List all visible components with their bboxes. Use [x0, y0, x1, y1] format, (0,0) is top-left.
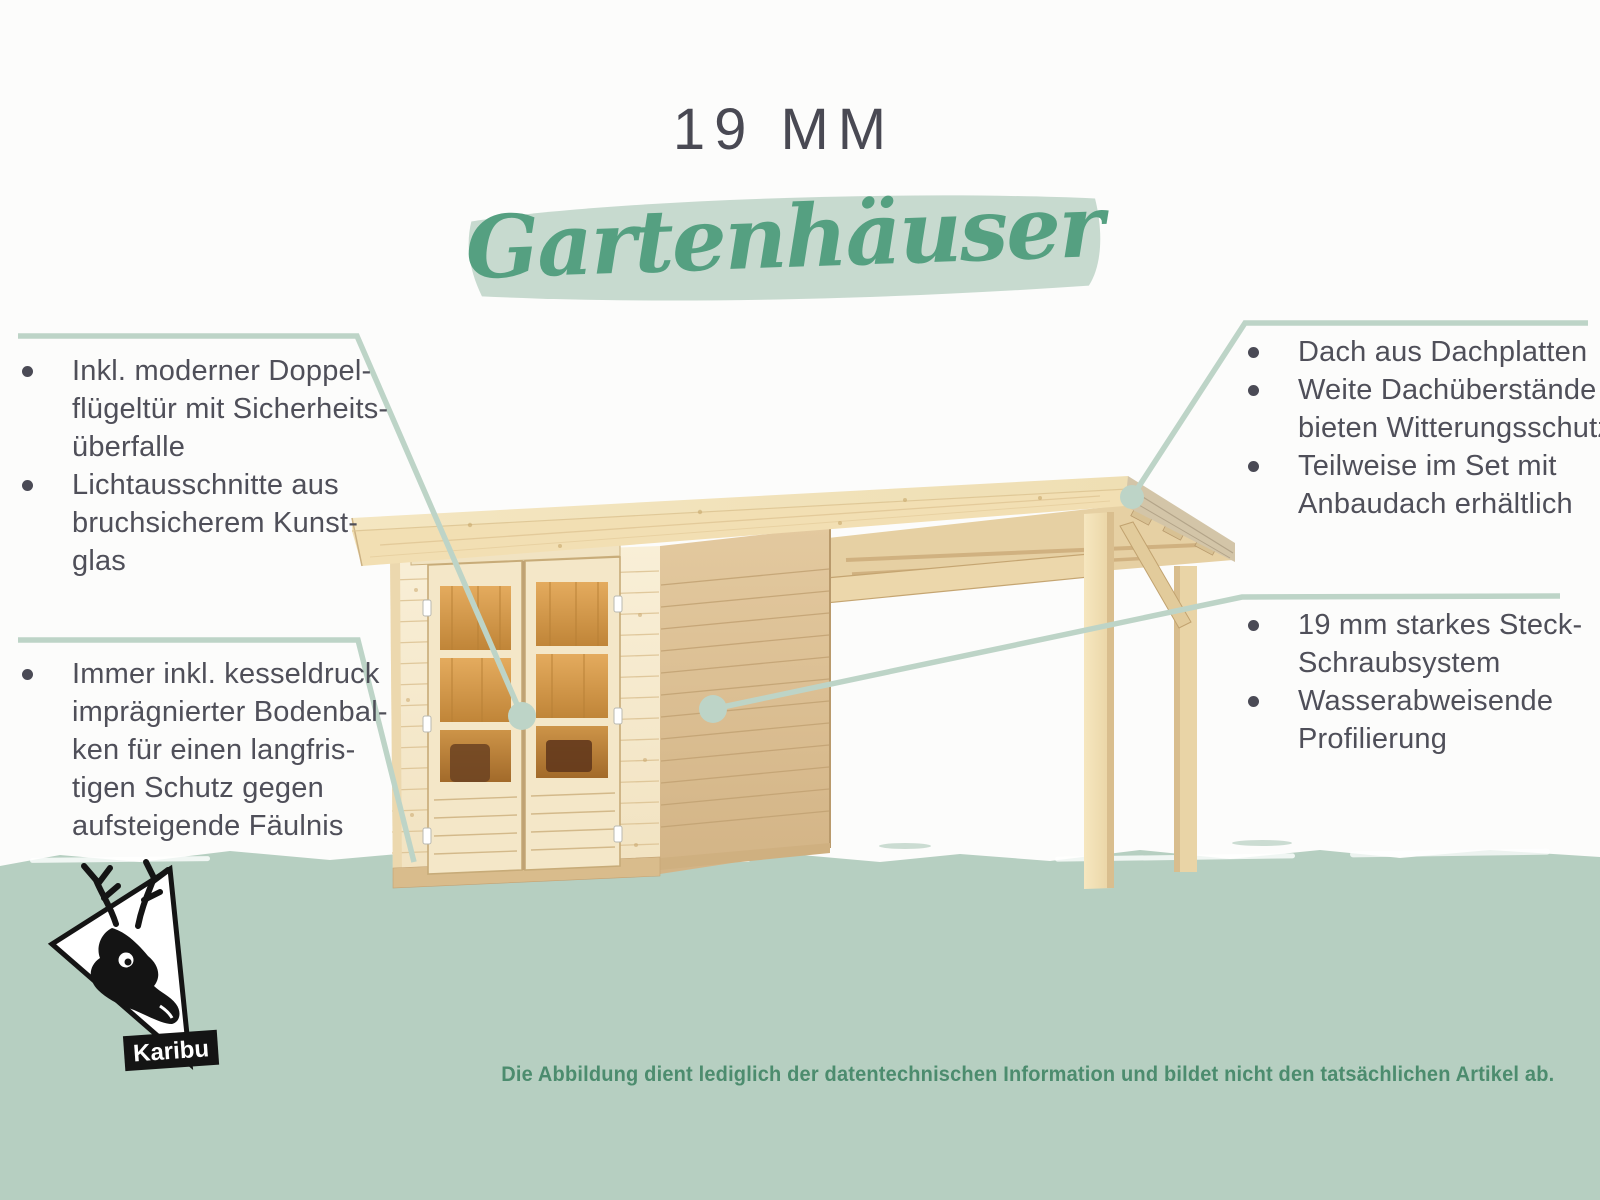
callout-right-top: Dach aus Dachplatten Weite Dachüberständ… — [1248, 333, 1600, 523]
door-window-pane — [536, 582, 608, 646]
callout-line: Teilweise im Set mit — [1298, 447, 1573, 485]
bullet-icon — [1248, 620, 1259, 631]
callout-left-bottom: Immer inkl. kesseldruck imprägnierter Bo… — [22, 655, 388, 845]
infographic-page: Karibu 19 MM Gartenhäuser Inkl. moderner… — [0, 0, 1600, 1200]
callout-line: glas — [72, 542, 358, 580]
callout-item: Dach aus Dachplatten — [1248, 333, 1600, 371]
callout-item: 19 mm starkes Steck- Schraubsystem — [1248, 606, 1582, 682]
callout-line: Lichtausschnitte aus — [72, 466, 358, 504]
callout-line: Inkl. moderner Doppel- — [72, 352, 388, 390]
callout-line: Weite Dachüberstände — [1298, 371, 1600, 409]
bullet-icon — [22, 366, 33, 377]
callout-dot-wall — [699, 695, 727, 723]
bullet-icon — [22, 669, 33, 680]
callout-line: imprägnierter Bodenbal- — [72, 693, 388, 731]
callout-line: 19 mm starkes Steck- — [1298, 606, 1582, 644]
disclaimer-text: Die Abbildung dient lediglich der datent… — [501, 1062, 1554, 1088]
callout-line: Immer inkl. kesseldruck — [72, 655, 388, 693]
interior-table-silhouette — [546, 740, 592, 772]
callout-left-top: Inkl. moderner Doppel- flügeltür mit Sic… — [22, 352, 388, 580]
door-leaf-right — [525, 557, 620, 870]
callout-item: Weite Dachüberstände bieten Witterungssc… — [1248, 371, 1600, 447]
page-title: 19 MM — [534, 100, 1034, 160]
interior-chair-silhouette — [450, 744, 490, 782]
callout-line: ken für einen langfris- — [72, 731, 388, 769]
karibu-wordmark: Karibu — [123, 1030, 219, 1071]
callout-line: Profilierung — [1298, 720, 1553, 758]
callout-item: Teilweise im Set mit Anbaudach erhältlic… — [1248, 447, 1600, 523]
bullet-icon — [1248, 385, 1259, 396]
canopy-front-post — [1084, 512, 1114, 889]
garden-house-render — [352, 476, 1235, 889]
callout-item: Lichtausschnitte aus bruchsicherem Kunst… — [22, 466, 388, 580]
callout-item: Inkl. moderner Doppel- flügeltür mit Sic… — [22, 352, 388, 466]
callout-dot-roof — [1120, 485, 1144, 509]
callout-item: Wasserabweisende Profilierung — [1248, 682, 1582, 758]
callout-dot-door — [508, 702, 536, 730]
callout-right-bottom: 19 mm starkes Steck- Schraubsystem Wasse… — [1248, 606, 1582, 758]
ground-band — [0, 840, 1600, 1200]
bullet-icon — [22, 480, 33, 491]
callout-line: aufsteigende Fäulnis — [72, 807, 388, 845]
bullet-icon — [1248, 347, 1259, 358]
callout-item: Immer inkl. kesseldruck imprägnierter Bo… — [22, 655, 388, 845]
callout-line: bieten Witterungsschutz — [1298, 409, 1600, 447]
bullet-icon — [1248, 696, 1259, 707]
callout-line: überfalle — [72, 428, 388, 466]
callout-line: Dach aus Dachplatten — [1298, 333, 1587, 371]
callout-line: Wasserabweisende — [1298, 682, 1553, 720]
callout-line: tigen Schutz gegen — [72, 769, 388, 807]
callout-line: Schraubsystem — [1298, 644, 1582, 682]
callout-line: Anbaudach erhältlich — [1298, 485, 1573, 523]
door-window-pane — [536, 654, 608, 718]
svg-text:Karibu: Karibu — [132, 1035, 210, 1067]
callout-line: flügeltür mit Sicherheits- — [72, 390, 388, 428]
callout-line: bruchsicherem Kunst- — [72, 504, 358, 542]
page-subtitle: Gartenhäuser — [432, 164, 1136, 318]
bullet-icon — [1248, 461, 1259, 472]
